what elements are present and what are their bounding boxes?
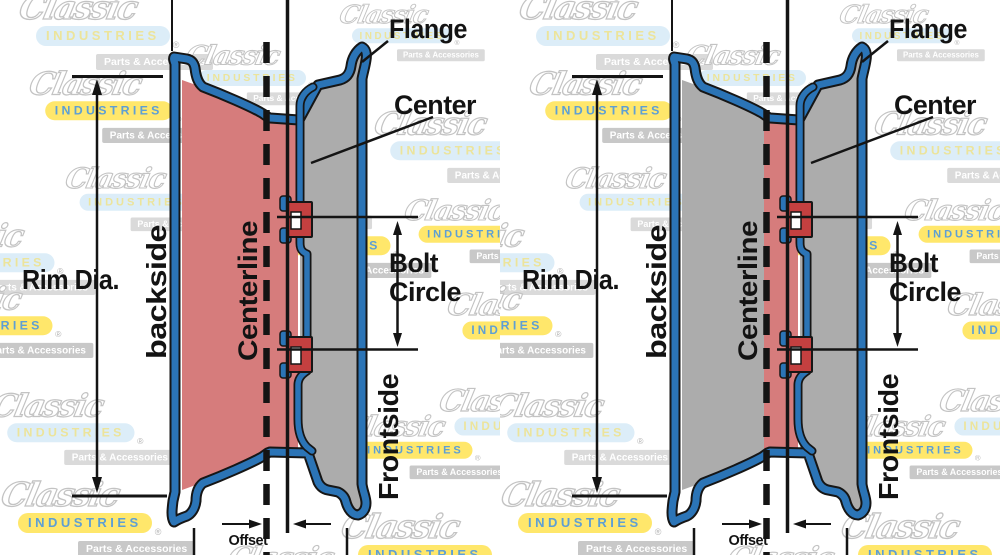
- centerline-label: Centerline: [233, 220, 263, 361]
- offset-right-arrowhead: [293, 520, 306, 529]
- rim-dia-arrowhead-down: [592, 477, 602, 493]
- bolt-circle-arrowhead-down: [393, 333, 402, 347]
- bolt-circle-label-line1: Bolt: [889, 248, 938, 278]
- wheel-cross-section-diagram: Flange Center Bolt Circle Rim Dia. backs…: [0, 0, 500, 555]
- wheel-dimension-diagrams: ClassicINDUSTRIES®Parts & AccessoriesCla…: [0, 0, 1000, 555]
- rim-dia-label: Rim Dia.: [522, 264, 619, 295]
- bolt-circle-label-line2: Circle: [889, 277, 961, 307]
- bolt-slot-upper: [291, 212, 301, 229]
- offset-left-arrowhead: [249, 520, 262, 529]
- offset-right-arrowhead: [793, 520, 806, 529]
- rim-dia-arrowhead-up: [92, 79, 102, 95]
- wheel-cross-section-diagram: Flange Center Bolt Circle Rim Dia. backs…: [500, 0, 1000, 555]
- bolt-circle-label-line1: Bolt: [389, 248, 438, 278]
- centerline-label: Centerline: [733, 220, 763, 361]
- rim-dia-arrowhead-up: [592, 79, 602, 95]
- bolt-circle-label-line2: Circle: [389, 277, 461, 307]
- frontside-label: Frontside: [873, 374, 904, 500]
- offset-label: Offset: [229, 533, 269, 549]
- wheel-diagram-offset: ClassicINDUSTRIES®Parts & AccessoriesCla…: [500, 0, 1000, 555]
- frontside-label: Frontside: [373, 374, 404, 500]
- backside-label: backside: [641, 225, 672, 359]
- offset-label: Offset: [729, 533, 769, 549]
- bolt-slot-upper: [791, 212, 801, 229]
- rim-dia-arrowhead-down: [92, 477, 102, 493]
- center-label: Center: [394, 90, 477, 120]
- bolt-circle-arrowhead-down: [893, 333, 902, 347]
- center-label: Center: [894, 90, 977, 120]
- bolt-circle-arrowhead-up: [393, 221, 402, 235]
- flange-label: Flange: [889, 14, 967, 44]
- backside-label: backside: [141, 225, 172, 359]
- wheel-diagram-backspacing: ClassicINDUSTRIES®Parts & AccessoriesCla…: [0, 0, 500, 555]
- offset-left-arrowhead: [749, 520, 762, 529]
- bolt-circle-arrowhead-up: [893, 221, 902, 235]
- flange-label: Flange: [389, 14, 467, 44]
- rim-dia-label: Rim Dia.: [22, 264, 119, 295]
